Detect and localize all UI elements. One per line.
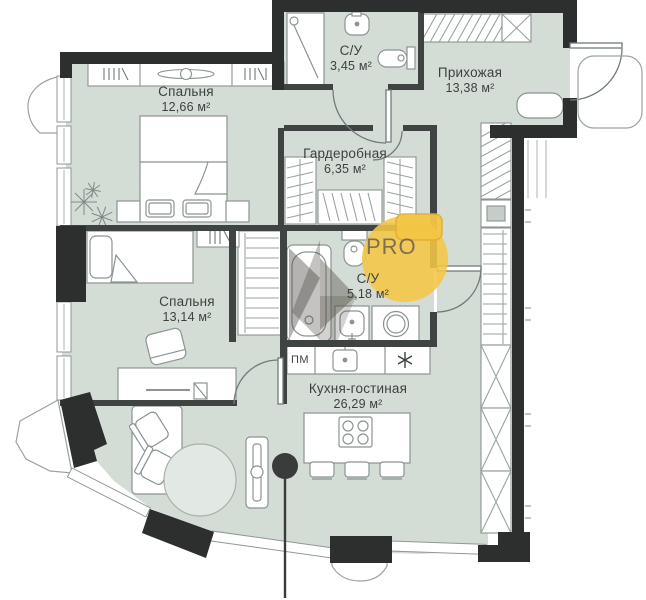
floor-plan: Спальня 12,66 м² С/У 3,45 м² Прихожая 13… — [0, 0, 646, 600]
kitchen-counter — [287, 345, 430, 374]
desk — [118, 368, 236, 401]
tv-console — [246, 437, 268, 508]
watermark-tag — [396, 214, 442, 240]
double-bed — [140, 116, 227, 222]
single-bed — [87, 231, 193, 283]
shower — [287, 13, 324, 85]
corridor-closet — [238, 231, 282, 335]
kitchen-island — [304, 413, 410, 463]
nightstand — [226, 201, 249, 222]
round-rug — [164, 444, 236, 516]
right-closet-strip — [475, 118, 515, 533]
floor-plan-drawing — [0, 0, 646, 600]
washing-machine — [372, 306, 419, 342]
sink — [345, 12, 369, 35]
bench — [517, 93, 563, 118]
shelf-row — [88, 62, 284, 86]
hallway-wardrobe — [420, 12, 531, 44]
nightstand — [117, 201, 140, 222]
bar-stools — [310, 462, 404, 479]
toilet — [378, 47, 415, 69]
